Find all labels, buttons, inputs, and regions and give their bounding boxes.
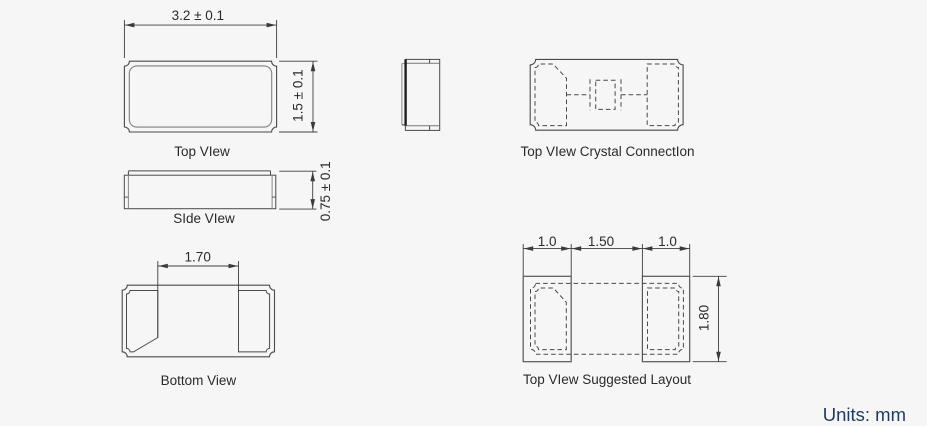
svg-text:3.2 ± 0.1: 3.2 ± 0.1 (172, 8, 224, 23)
svg-text:1.80: 1.80 (696, 305, 711, 331)
svg-text:Units: mm: Units: mm (823, 404, 906, 425)
svg-text:1.0: 1.0 (658, 234, 677, 249)
svg-text:1.70: 1.70 (185, 250, 211, 265)
svg-text:0.75 ± 0.1: 0.75 ± 0.1 (318, 161, 333, 221)
svg-text:Bottom View: Bottom View (161, 373, 237, 388)
svg-text:1.50: 1.50 (588, 234, 614, 249)
svg-text:1.0: 1.0 (538, 234, 557, 249)
svg-text:1.5 ± 0.1: 1.5 ± 0.1 (291, 69, 306, 121)
svg-text:Top VIew Crystal ConnectIon: Top VIew Crystal ConnectIon (520, 144, 694, 159)
svg-text:SIde VIew: SIde VIew (173, 211, 235, 226)
svg-text:Top VIew: Top VIew (174, 144, 230, 159)
svg-text:Top VIew Suggested Layout: Top VIew Suggested Layout (523, 372, 691, 387)
